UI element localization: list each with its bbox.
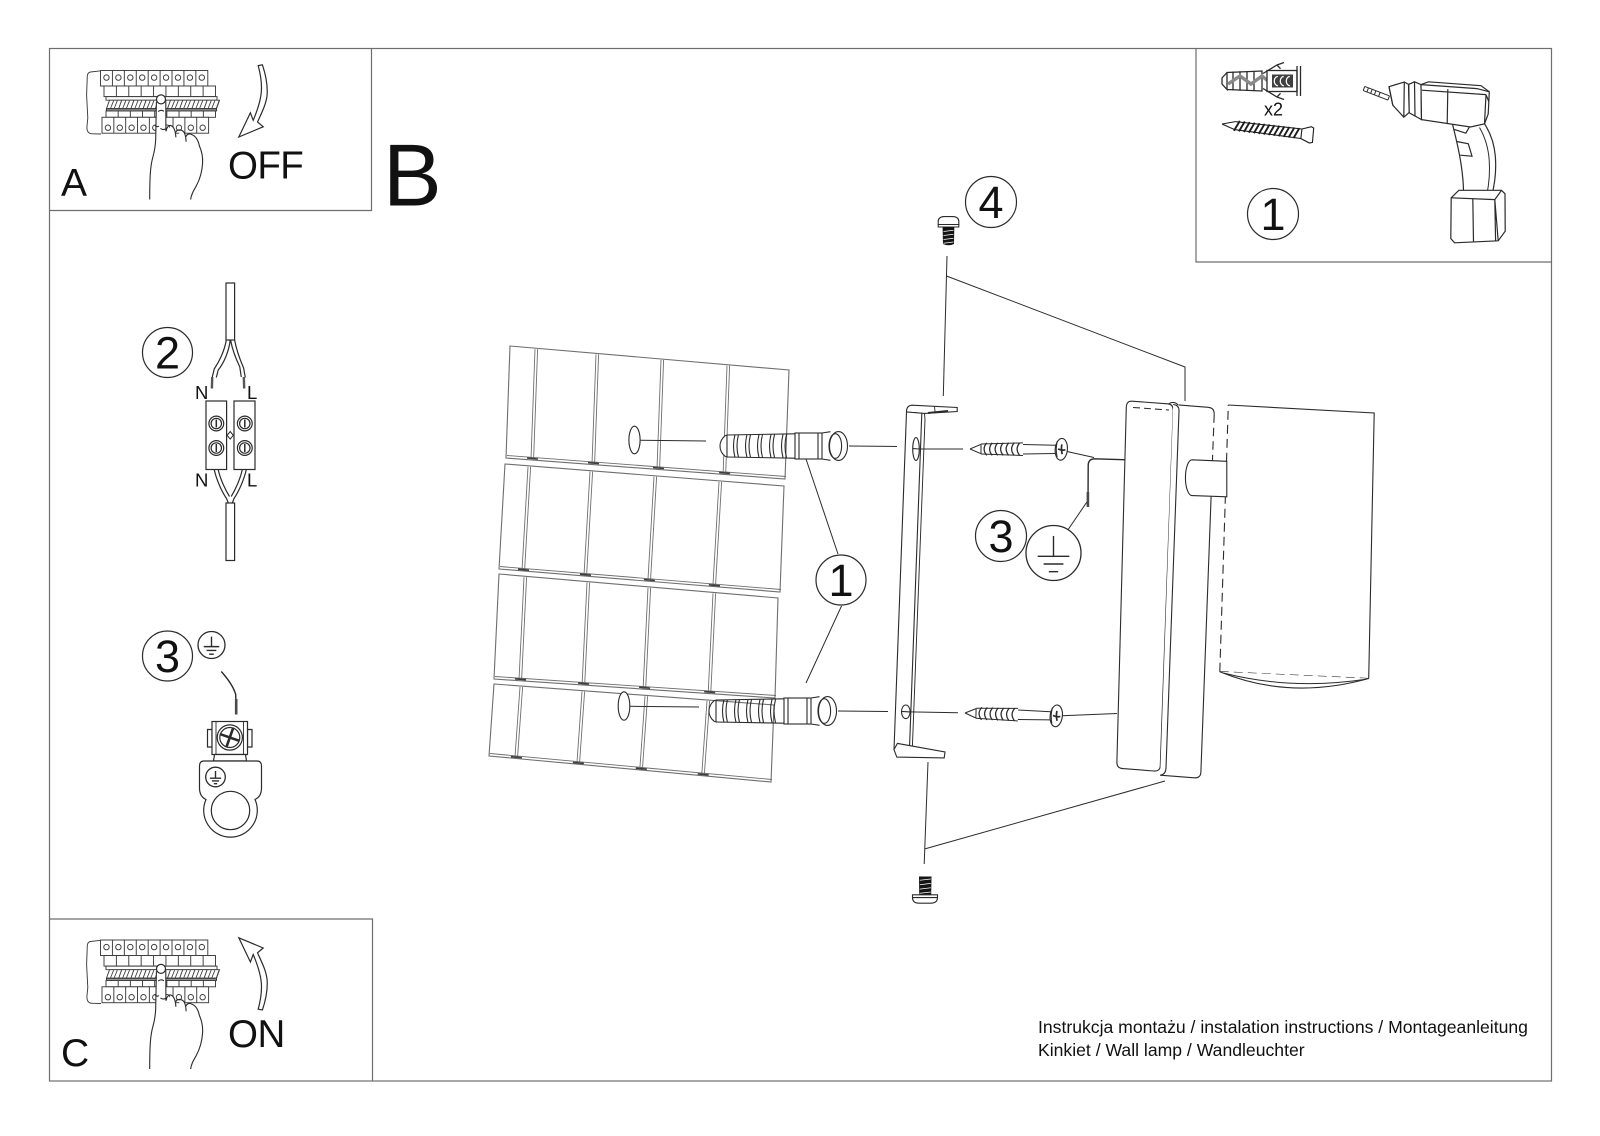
- svg-text:N: N: [195, 470, 208, 491]
- svg-text:x2: x2: [1264, 100, 1283, 120]
- svg-text:Kinkiet / Wall lamp / Wandleuc: Kinkiet / Wall lamp / Wandleuchter: [1038, 1040, 1305, 1060]
- svg-text:Instrukcja montażu / instalati: Instrukcja montażu / instalation instruc…: [1038, 1017, 1528, 1037]
- svg-text:ON: ON: [228, 1013, 285, 1056]
- svg-text:4: 4: [978, 177, 1003, 228]
- svg-text:B: B: [383, 126, 442, 225]
- svg-text:OFF: OFF: [228, 145, 303, 188]
- svg-text:N: N: [195, 382, 208, 403]
- svg-text:L: L: [247, 382, 257, 403]
- svg-text:A: A: [61, 162, 87, 205]
- svg-text:C: C: [61, 1032, 89, 1075]
- svg-text:1: 1: [828, 555, 853, 606]
- svg-text:2: 2: [155, 327, 180, 378]
- svg-text:L: L: [247, 470, 257, 491]
- svg-text:1: 1: [1260, 189, 1285, 240]
- svg-text:3: 3: [155, 631, 180, 682]
- svg-text:3: 3: [988, 511, 1013, 562]
